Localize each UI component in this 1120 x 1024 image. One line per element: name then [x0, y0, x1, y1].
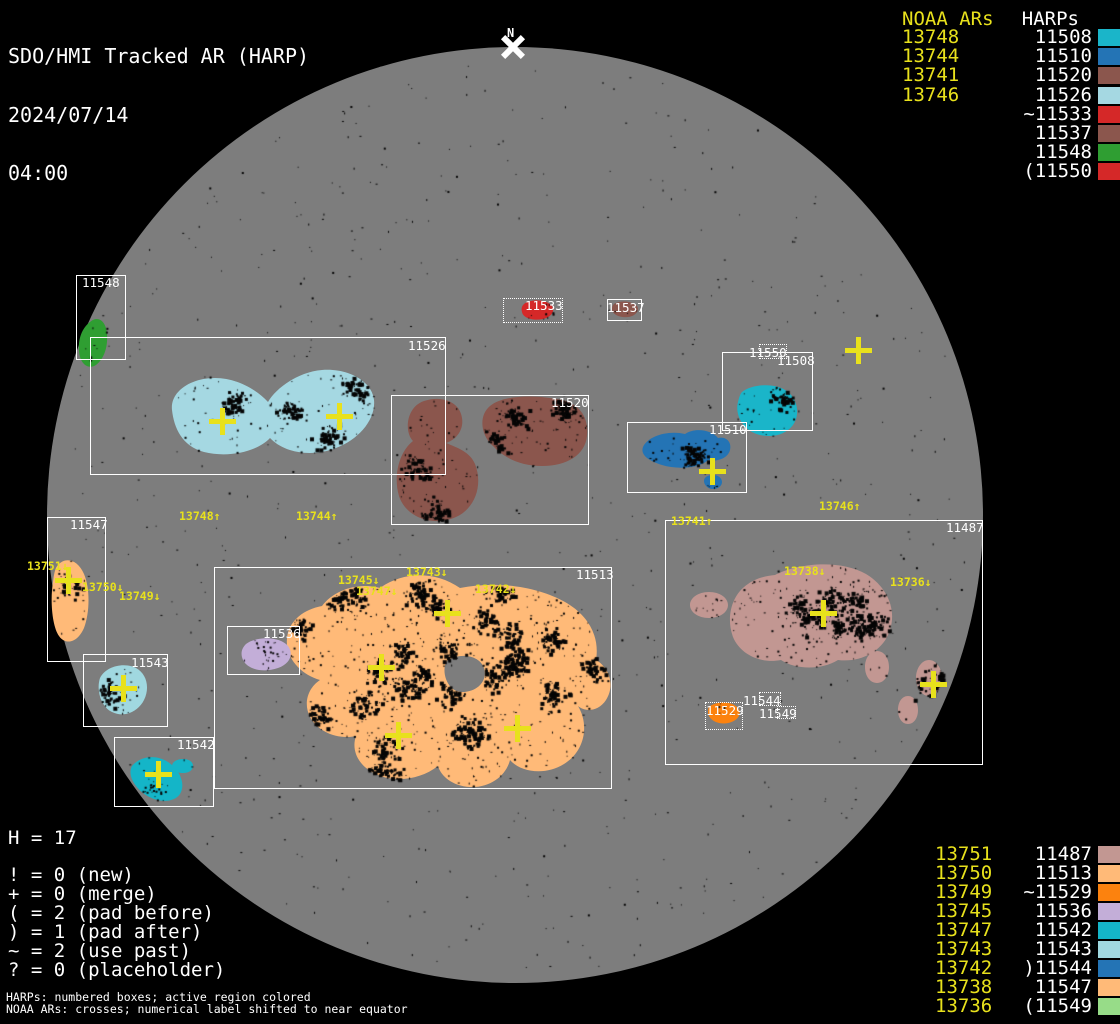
harp-number: (11549 — [1023, 997, 1092, 1016]
legend-row-11533: ~11533 — [902, 105, 1120, 124]
noaa-ar-label-13748: 13748↑ — [179, 511, 221, 523]
legend-row-11520: 1374111520 — [902, 66, 1120, 85]
noaa-ar-label-13741: 13741↑ — [671, 516, 713, 528]
noaa-ar-number: 13744 — [902, 47, 959, 66]
title-block: SDO/HMI Tracked AR (HARP) 2024/07/14 04:… — [8, 8, 309, 223]
noaa-ar-label-13749: 13749↓ — [119, 591, 161, 603]
legend-row-11508: 1374811508 — [902, 28, 1120, 47]
noaa-ar-label-13736: 13736↓ — [890, 577, 932, 589]
legend-row-11510: 1374411510 — [902, 47, 1120, 66]
harp-color-swatch — [1098, 163, 1120, 180]
footnote-noaa: NOAA ARs: crosses; numerical label shift… — [6, 1003, 408, 1015]
legend-row-11549: 13736(11549 — [902, 997, 1120, 1016]
harp-color-swatch — [1098, 87, 1120, 104]
noaa-ar-label-13751: 13751↓ — [27, 561, 69, 573]
noaa-ar-label-13747: 13747↓ — [356, 586, 398, 598]
harp-color-swatch — [1098, 998, 1120, 1015]
harp-color-swatch — [1098, 48, 1120, 65]
harp-color-swatch — [1098, 922, 1120, 939]
noaa-ar-number: 13748 — [902, 28, 959, 47]
harp-number: ~11533 — [1023, 105, 1092, 124]
harp-number: 11510 — [1035, 47, 1092, 66]
harp-color-swatch — [1098, 960, 1120, 977]
harp-color-swatch — [1098, 67, 1120, 84]
harp-color-swatch — [1098, 979, 1120, 996]
noaa-ar-label-13746: 13746↑ — [819, 501, 861, 513]
noaa-ar-label-13738: 13738↓ — [784, 566, 826, 578]
harp-number: 11537 — [1035, 124, 1092, 143]
noaa-ar-label-13744: 13744↑ — [296, 511, 338, 523]
legend-row-11550: (11550 — [902, 162, 1120, 181]
harp-count: H = 17 — [8, 829, 77, 848]
harp-number: (11550 — [1023, 162, 1092, 181]
legend-row-11526: 1374611526 — [902, 86, 1120, 105]
legend-row-11537: 11537 — [902, 124, 1120, 143]
noaa-ar-number: 13746 — [902, 86, 959, 105]
harp-color-swatch — [1098, 941, 1120, 958]
harp-color-swatch — [1098, 884, 1120, 901]
noaa-ar-label-13742: 13742↓ — [475, 584, 517, 596]
harp-number: 11520 — [1035, 66, 1092, 85]
harp-color-swatch — [1098, 144, 1120, 161]
harp-number: 11508 — [1035, 28, 1092, 47]
noaa-ar-label-13750: 13750↓ — [82, 582, 124, 594]
harp-color-swatch — [1098, 125, 1120, 142]
harp-color-swatch — [1098, 865, 1120, 882]
noaa-ar-number: 13741 — [902, 66, 959, 85]
harp-number: 11548 — [1035, 143, 1092, 162]
noaa-ar-label-13743: 13743↓ — [406, 567, 448, 579]
legend-placeholder: ? = 0 (placeholder) — [8, 961, 225, 980]
harp-color-swatch — [1098, 903, 1120, 920]
legend-row-11548: 11548 — [902, 143, 1120, 162]
sdo-hmi-harp-visualization: 1154811526115201153311537115501150811510… — [0, 0, 1120, 1024]
page-title: SDO/HMI Tracked AR (HARP) — [8, 47, 309, 67]
date-text: 2024/07/14 — [8, 106, 309, 126]
time-text: 04:00 — [8, 164, 309, 184]
harp-number: 11526 — [1035, 86, 1092, 105]
noaa-ar-number: 13736 — [935, 997, 992, 1016]
harp-color-swatch — [1098, 846, 1120, 863]
harp-color-swatch — [1098, 29, 1120, 46]
harp-color-swatch — [1098, 106, 1120, 123]
